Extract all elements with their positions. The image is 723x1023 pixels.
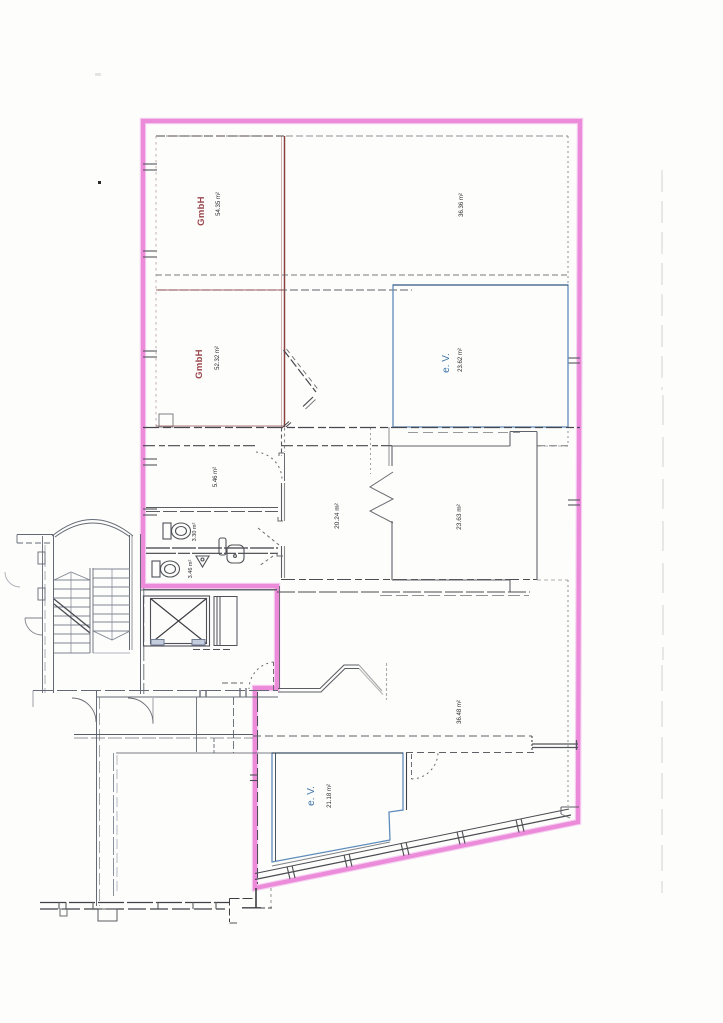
- svg-text:3.46 m²: 3.46 m²: [188, 560, 194, 579]
- svg-text:52.32 m²: 52.32 m²: [215, 346, 221, 370]
- svg-text:54.35 m²: 54.35 m²: [216, 192, 222, 216]
- svg-text:GmbH: GmbH: [194, 349, 205, 379]
- svg-text:20.24 m²: 20.24 m²: [334, 502, 341, 528]
- svg-text:36.36 m²: 36.36 m²: [459, 193, 465, 217]
- svg-text:5.46 m²: 5.46 m²: [213, 467, 219, 487]
- svg-text:GmbH: GmbH: [196, 196, 207, 226]
- svg-text:36.48 m²: 36.48 m²: [457, 700, 463, 724]
- svg-text:23.63 m²: 23.63 m²: [456, 503, 463, 529]
- svg-text:21.18 m²: 21.18 m²: [327, 784, 333, 808]
- svg-text:3.30 m²: 3.30 m²: [192, 523, 198, 542]
- svg-text:e. V.: e. V.: [306, 786, 317, 806]
- svg-text:23.62 m²: 23.62 m²: [458, 348, 464, 372]
- svg-text:e. V.: e. V.: [441, 353, 452, 373]
